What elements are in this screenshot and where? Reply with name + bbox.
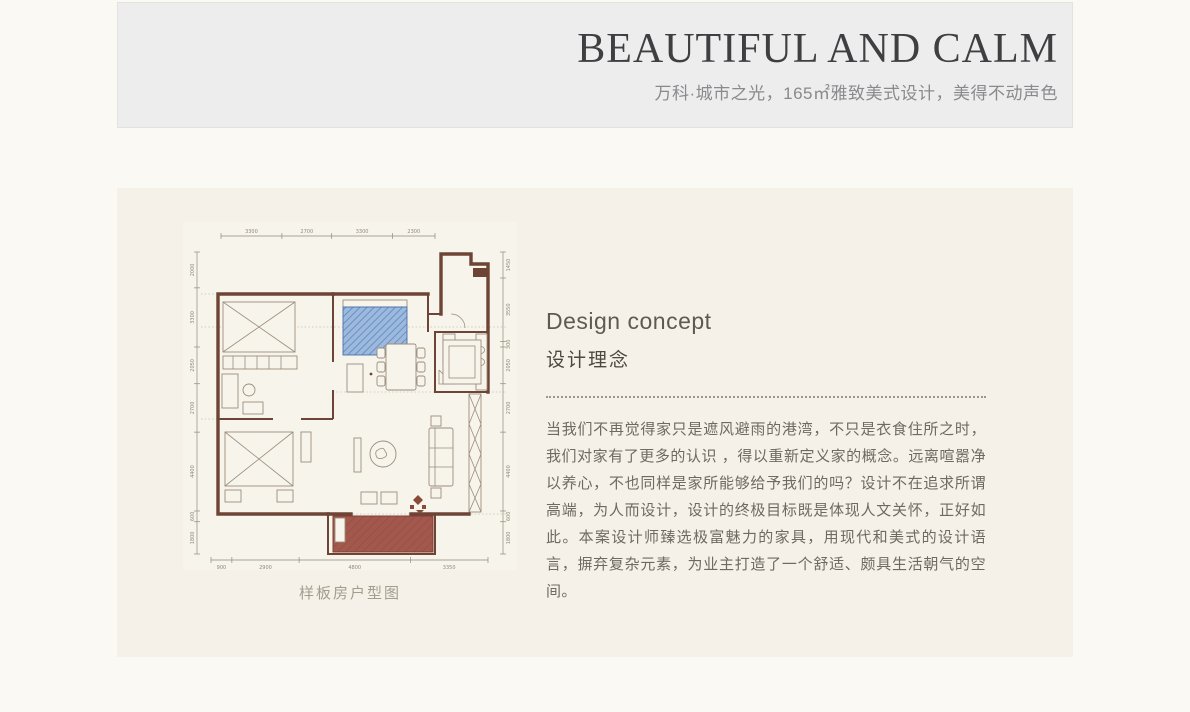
svg-text:2700: 2700 [506,402,512,415]
svg-text:2050: 2050 [506,359,512,372]
svg-text:2300: 2300 [407,229,420,235]
svg-text:600: 600 [190,512,196,522]
svg-text:3300: 3300 [356,229,369,235]
master-bedroom [225,432,311,502]
svg-text:1800: 1800 [506,532,512,545]
page-subtitle: 万科·城市之光，165㎡雅致美式设计，美得不动声色 [654,79,1058,104]
svg-text:600: 600 [506,512,512,522]
living-room [354,416,453,514]
svg-text:4400: 4400 [506,465,512,478]
design-concept-title-zh: 设计理念 [546,345,986,372]
svg-text:2050: 2050 [190,359,196,372]
svg-text:2000: 2000 [190,264,196,277]
svg-text:1800: 1800 [190,532,196,545]
svg-text:2700: 2700 [190,402,196,415]
svg-text:2700: 2700 [300,229,313,235]
design-concept: Design concept 设计理念 当我们不再觉得家只是遮风避雨的港湾，不只… [546,308,986,605]
plant-icon [410,495,426,514]
svg-text:4400: 4400 [190,465,196,478]
svg-text:3300: 3300 [245,229,258,235]
svg-text:300: 300 [506,340,512,350]
page: BEAUTIFUL AND CALM 万科·城市之光，165㎡雅致美式设计，美得… [0,0,1190,712]
svg-text:3350: 3350 [443,565,456,570]
floor-plan-caption: 样板房户型图 [183,582,517,603]
elevator [443,340,481,384]
svg-text:3550: 3550 [506,303,512,316]
balcony [333,516,433,552]
floor-plan-figure: 3300270033002300900290048003350200033002… [183,222,517,603]
svg-text:2900: 2900 [259,565,272,570]
svg-text:4800: 4800 [348,565,361,570]
svg-text:900: 900 [217,565,227,570]
bedroom-furniture [222,302,297,414]
floor-plan-image: 3300270033002300900290048003350200033002… [183,222,517,570]
design-concept-title-en: Design concept [546,308,986,335]
svg-text:3300: 3300 [190,311,196,324]
dining-set [377,344,425,390]
header-banner: BEAUTIFUL AND CALM 万科·城市之光，165㎡雅致美式设计，美得… [117,2,1073,128]
design-concept-paragraph: 当我们不再觉得家只是遮风避雨的港湾，不只是衣食住所之时，我们对家有了更多的认识 … [546,416,986,605]
svg-text:1450: 1450 [506,259,512,272]
content-section: 3300270033002300900290048003350200033002… [117,188,1073,657]
dotted-divider [546,396,986,398]
page-title: BEAUTIFUL AND CALM [577,26,1058,72]
